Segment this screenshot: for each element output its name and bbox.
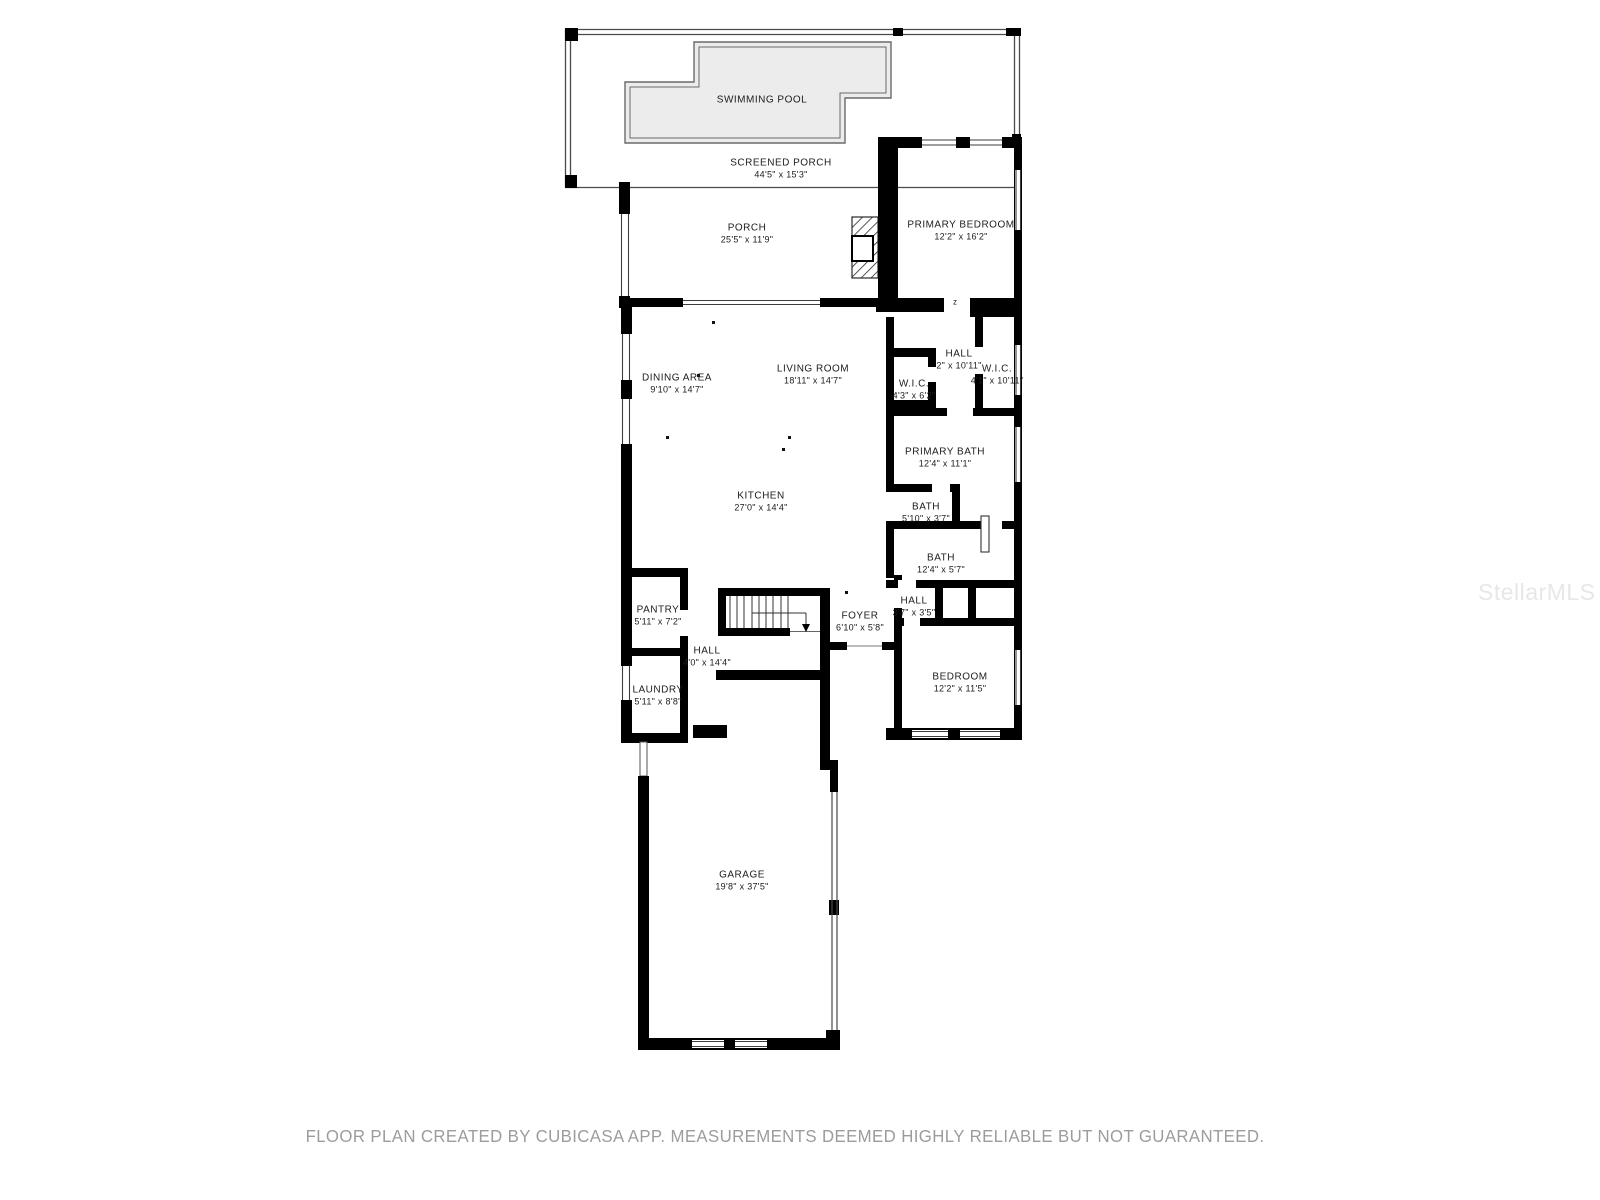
room-name: GARAGE <box>715 870 768 882</box>
room-dims: 4'1" x 10'11" <box>971 375 1024 387</box>
room-name: DINING AREA <box>642 373 712 385</box>
fireplace <box>852 217 878 278</box>
room-label-bath-small: BATH 5'10" x 3'7" <box>902 502 950 525</box>
room-dims: 12'4" x 5'7" <box>917 564 965 576</box>
room-label-garage: GARAGE 19'8" x 37'5" <box>715 870 768 893</box>
room-name: FOYER <box>836 611 884 623</box>
room-name: PANTRY <box>634 605 681 617</box>
room-name: PORCH <box>721 223 774 235</box>
swimming-pool-shape <box>625 42 891 143</box>
room-name: BATH <box>902 502 950 514</box>
room-label-living-room: LIVING ROOM 18'11" x 14'7" <box>777 364 849 387</box>
room-label-hall-main: HALL 4'0" x 14'4" <box>683 646 731 669</box>
room-label-bath-long: BATH 12'4" x 5'7" <box>917 553 965 576</box>
room-dims: 5'10" x 3'7" <box>902 513 950 525</box>
room-label-wic-left: W.I.C. 4'3" x 6'2" <box>893 379 936 402</box>
room-dims: 5'11" x 7'2" <box>634 616 681 628</box>
room-label-primary-bath: PRIMARY BATH 12'4" x 11'1" <box>905 447 985 470</box>
room-name: HALL <box>936 349 981 361</box>
room-label-foyer: FOYER 6'10" x 5'8" <box>836 611 884 634</box>
stellar-mls-watermark: StellarMLS <box>1478 579 1595 606</box>
room-name: LAUNDRY <box>632 685 683 697</box>
room-label-pantry: PANTRY 5'11" x 7'2" <box>634 605 681 628</box>
measurement-ticks <box>666 321 848 594</box>
room-label-bedroom: BEDROOM 12'2" x 11'5" <box>932 672 987 695</box>
door-swing-mark: z <box>953 298 957 307</box>
room-dims: 44'5" x 15'3" <box>730 169 831 181</box>
room-label-wic-right: W.I.C. 4'1" x 10'11" <box>971 364 1024 387</box>
room-dims: 19'8" x 37'5" <box>715 881 768 893</box>
room-dims: 6'10" x 5'8" <box>836 622 884 634</box>
room-label-dining-area: DINING AREA 9'10" x 14'7" <box>642 373 712 396</box>
room-dims: 12'2" x 16'2" <box>907 231 1014 243</box>
room-dims: 18'11" x 14'7" <box>777 375 849 387</box>
room-dims: 4'3" x 6'2" <box>893 390 936 402</box>
room-name: W.I.C. <box>971 364 1024 376</box>
room-label-laundry: LAUNDRY 5'11" x 8'8" <box>632 685 683 708</box>
room-dims: 9'10" x 14'7" <box>642 384 712 396</box>
room-name: HALL <box>683 646 731 658</box>
room-label-swimming-pool: SWIMMING POOL <box>717 94 807 106</box>
room-label-hall-small: HALL 3'7" x 3'5" <box>893 596 936 619</box>
room-name: LIVING ROOM <box>777 364 849 376</box>
room-name: SCREENED PORCH <box>730 158 831 170</box>
room-label-porch: PORCH 25'5" x 11'9" <box>721 223 774 246</box>
room-name: PRIMARY BATH <box>905 447 985 459</box>
room-name: BATH <box>917 553 965 565</box>
room-dims: 27'0" x 14'4" <box>734 502 787 514</box>
left-wall <box>621 300 727 743</box>
room-dims: 3'7" x 3'5" <box>893 607 936 619</box>
room-name: HALL <box>893 596 936 608</box>
floor-plan-page: SWIMMING POOL SCREENED PORCH 44'5" x 15'… <box>0 0 1600 1200</box>
room-dims: 4'0" x 14'4" <box>683 657 731 669</box>
room-dims: 12'4" x 11'1" <box>905 458 985 470</box>
footer-disclaimer: FLOOR PLAN CREATED BY CUBICASA APP. MEAS… <box>306 1126 1265 1147</box>
room-dims: 12'2" x 11'5" <box>932 683 987 695</box>
room-name: SWIMMING POOL <box>717 94 807 106</box>
room-name: BEDROOM <box>932 672 987 684</box>
stairs-walls <box>716 588 838 792</box>
entry-door <box>828 642 902 650</box>
room-name: KITCHEN <box>734 491 787 503</box>
room-name: PRIMARY BEDROOM <box>907 220 1014 232</box>
room-dims: 25'5" x 11'9" <box>721 234 774 246</box>
garage-walls <box>638 742 840 1050</box>
room-label-primary-bedroom: PRIMARY BEDROOM 12'2" x 16'2" <box>907 220 1014 243</box>
room-name: W.I.C. <box>893 379 936 391</box>
room-label-kitchen: KITCHEN 27'0" x 14'4" <box>734 491 787 514</box>
room-dims: 5'11" x 8'8" <box>632 696 683 708</box>
room-label-screened-porch: SCREENED PORCH 44'5" x 15'3" <box>730 158 831 181</box>
